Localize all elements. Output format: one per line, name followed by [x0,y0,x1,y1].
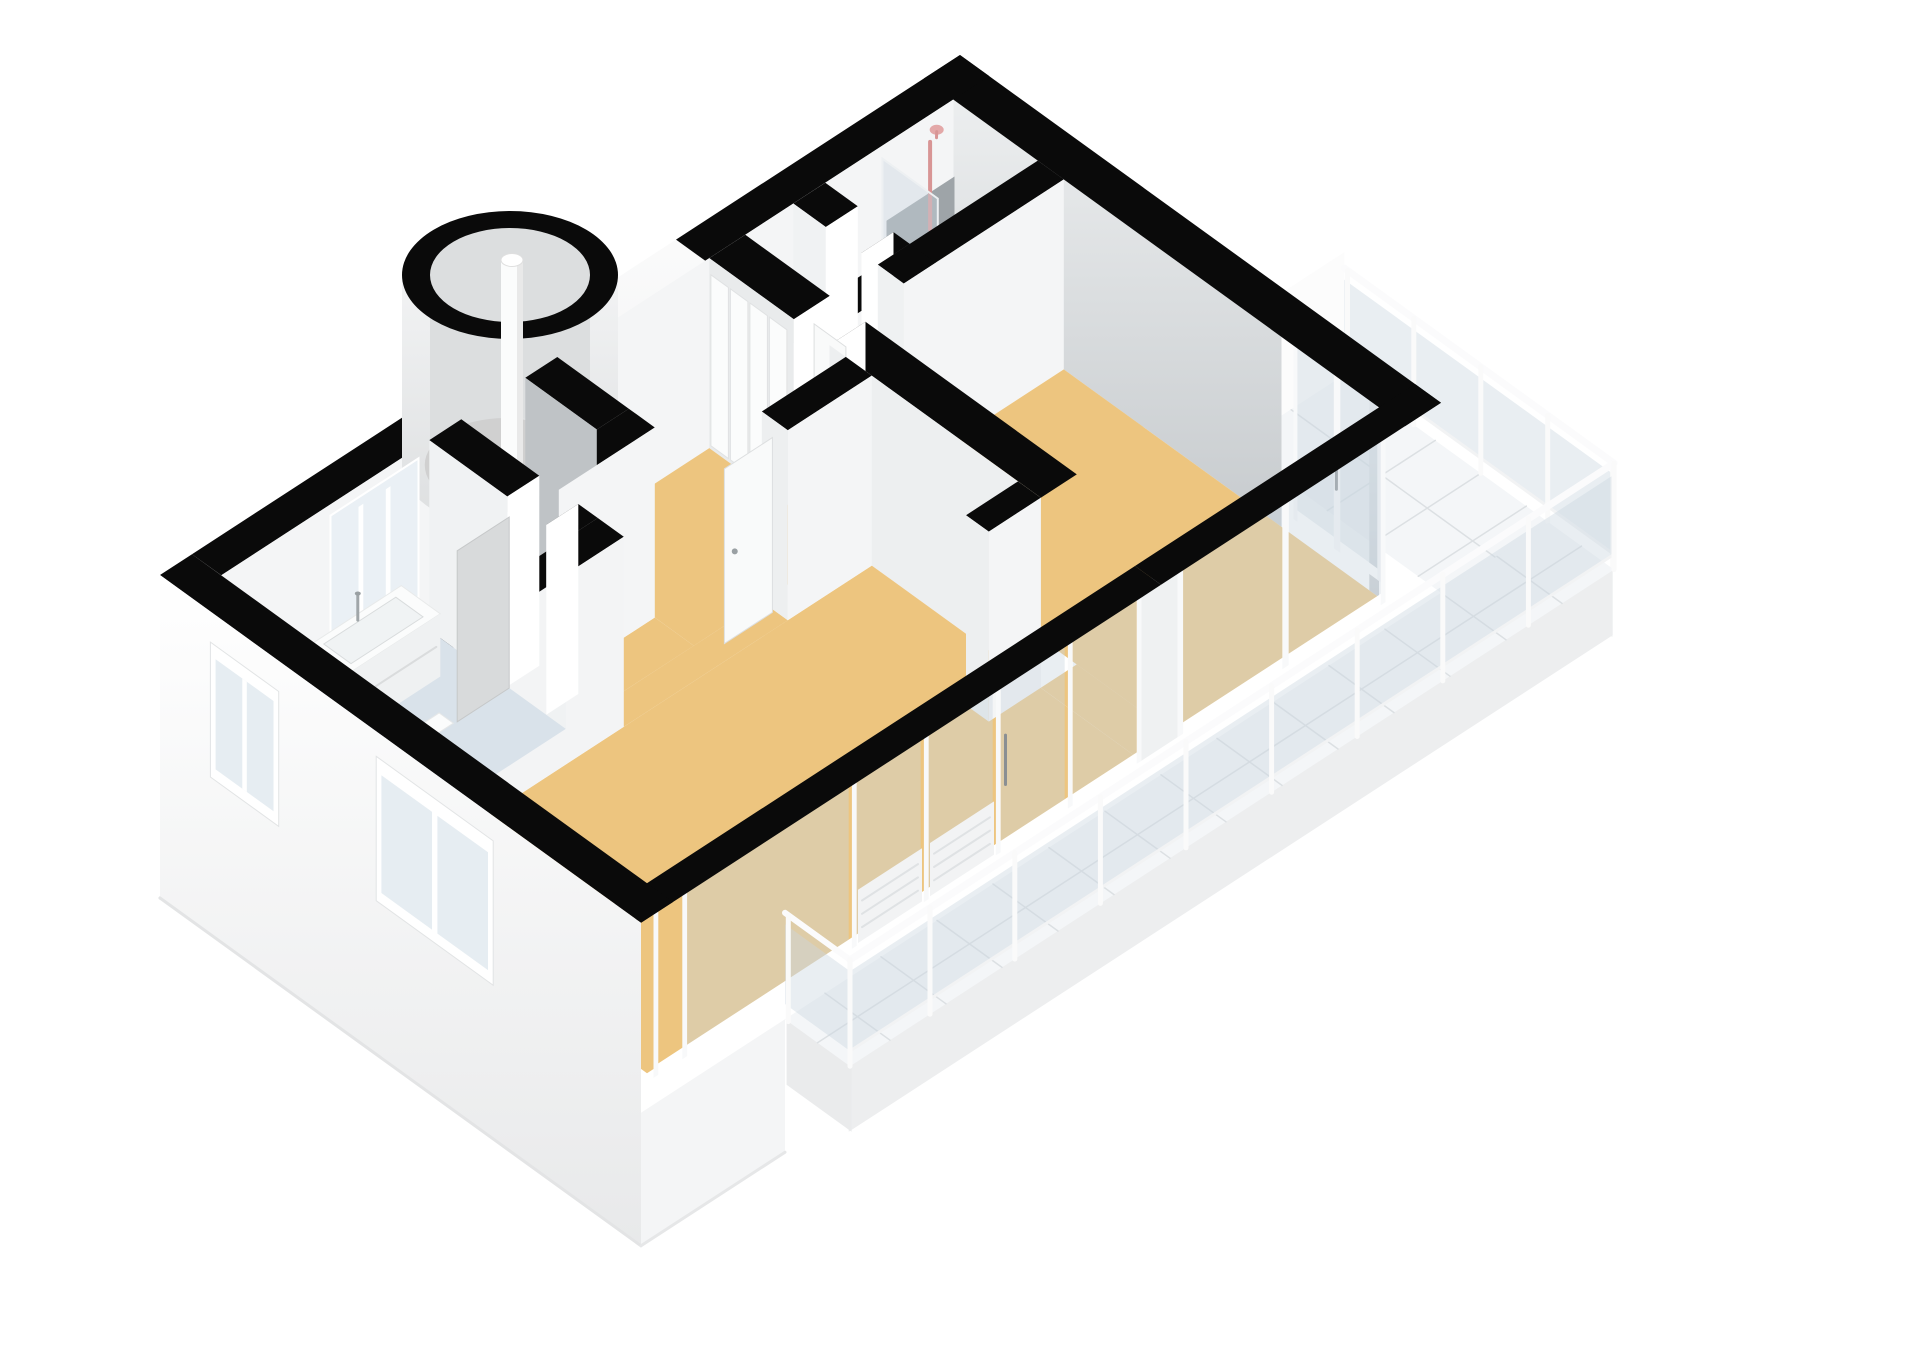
hall-door [724,438,772,644]
window-mullion [924,717,929,903]
floorplan-3d-view [0,0,1920,1358]
door-jamb [507,476,539,687]
faucet-icon [355,592,361,596]
window-mullion [1068,623,1073,809]
window-mullion [1137,578,1142,764]
wardrobe-door-panel [711,275,729,459]
window-mullion [432,812,437,934]
column-shade [517,260,523,465]
floorplan-svg [0,0,1920,1358]
window-mullion [996,670,1001,856]
window-mullion [1282,483,1288,670]
window-mullion [242,679,247,793]
wardrobe-door-panel [730,289,748,473]
column-cap [501,254,523,267]
bathroom-door [457,517,509,722]
window-mullion [1381,420,1386,606]
window-mullion [654,892,659,1078]
window-mullion [1178,551,1184,737]
window-mullion [852,763,857,949]
window-mullion [682,874,687,1059]
door-handle [732,548,738,554]
door-jamb [546,504,578,715]
